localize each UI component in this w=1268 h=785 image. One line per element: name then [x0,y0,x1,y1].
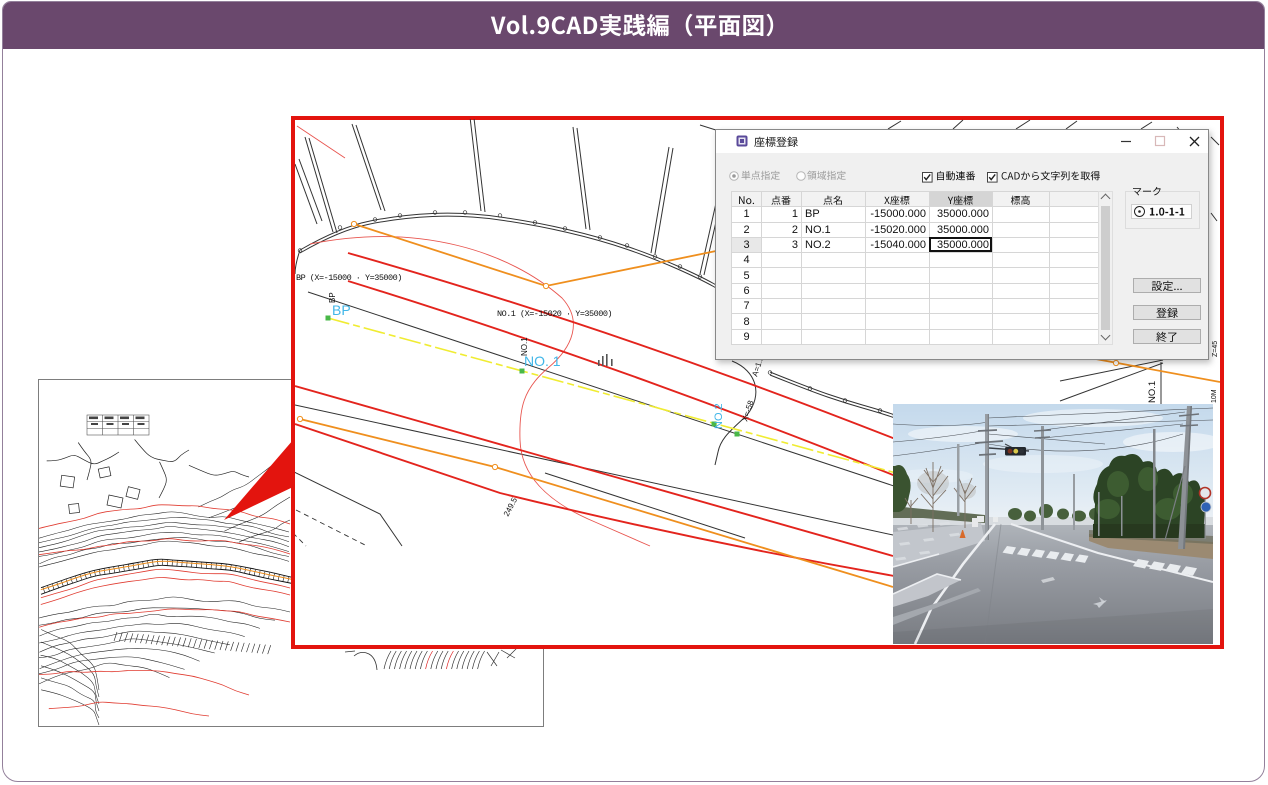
svg-text:NO.1: NO.1 [1147,381,1158,403]
svg-text:BP: BP [332,302,351,318]
svg-text:NO. 1: NO. 1 [524,353,561,369]
svg-text:Z=45: Z=45 [1212,341,1219,357]
svg-text:249.5: 249.5 [502,496,520,518]
svg-text:10M: 10M [1211,389,1218,403]
svg-text:X=-58: X=-58 [740,399,755,423]
svg-text:NO.1 (X=-15020 · Y=35000): NO.1 (X=-15020 · Y=35000) [497,309,612,319]
svg-text:NO.2: NO.2 [713,403,725,429]
svg-text:BP: BP [328,292,337,303]
svg-text:BP (X=-15000 · Y=35000): BP (X=-15000 · Y=35000) [296,273,402,283]
svg-text:NO.1: NO.1 [520,337,529,356]
